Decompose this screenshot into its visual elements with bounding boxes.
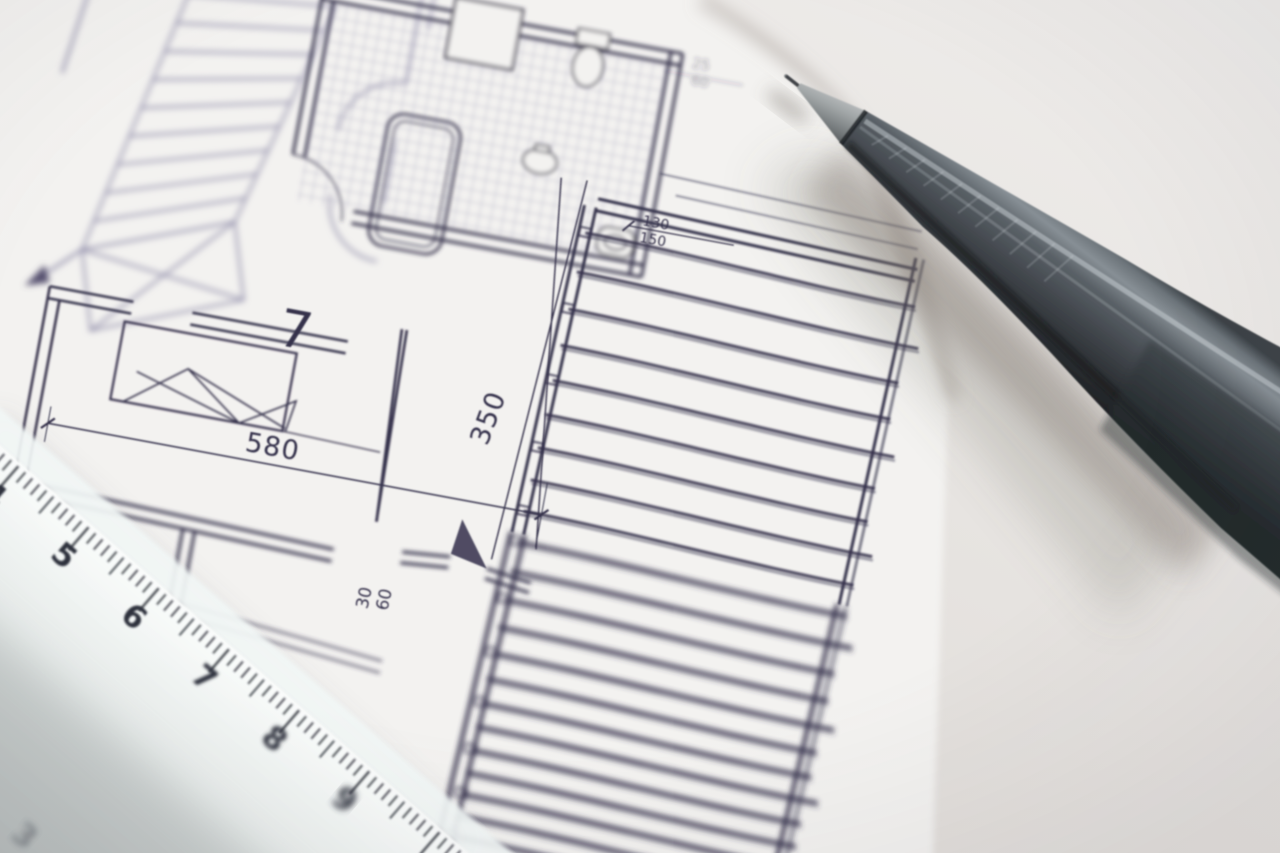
vignette — [0, 0, 1280, 853]
photo-architectural-plan-scene: 7 580 350 30 60 130 150 25 60 — [0, 0, 1280, 853]
photo-canvas: 7 580 350 30 60 130 150 25 60 — [0, 0, 1280, 853]
